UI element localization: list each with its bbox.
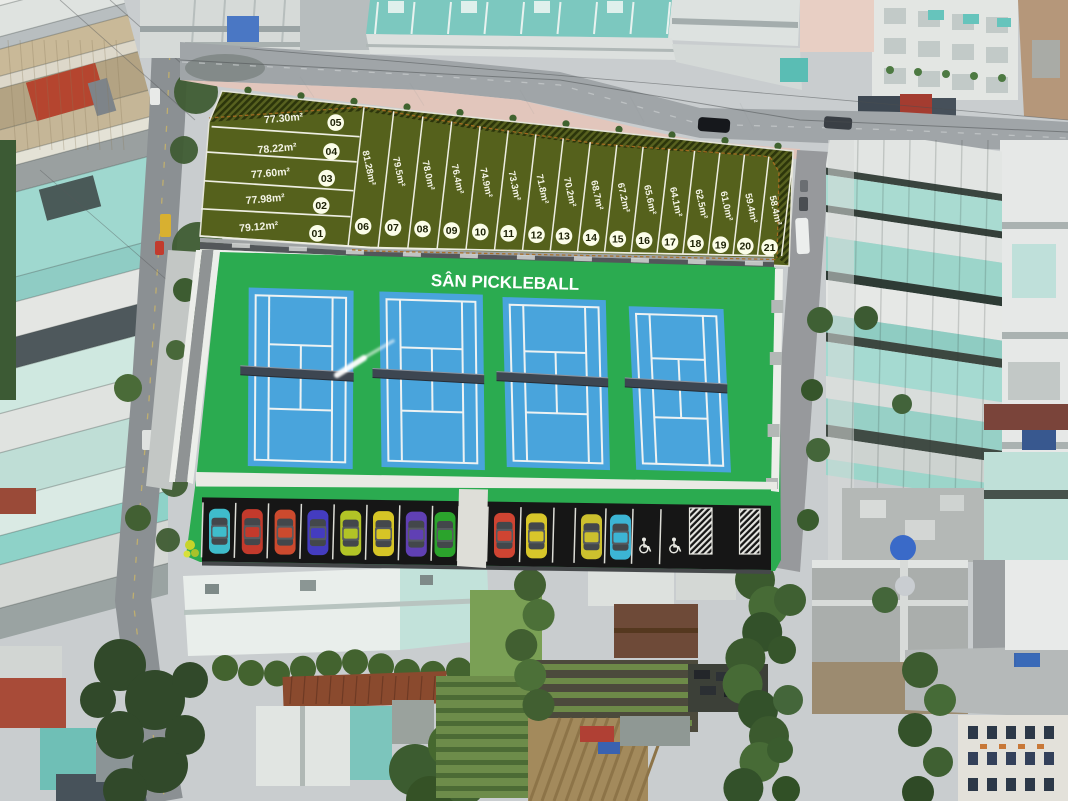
svg-text:01: 01 <box>312 228 324 240</box>
svg-text:07: 07 <box>387 222 399 234</box>
svg-text:11: 11 <box>503 228 514 240</box>
svg-text:08: 08 <box>417 224 429 236</box>
svg-text:05: 05 <box>330 117 342 129</box>
svg-text:04: 04 <box>326 146 338 158</box>
svg-text:14: 14 <box>585 232 597 244</box>
svg-text:SÂN PICKLEBALL: SÂN PICKLEBALL <box>431 271 580 294</box>
svg-text:15: 15 <box>612 234 624 246</box>
svg-text:21: 21 <box>764 242 776 254</box>
svg-text:09: 09 <box>446 225 458 237</box>
svg-text:16: 16 <box>638 235 650 247</box>
svg-text:10: 10 <box>474 227 486 239</box>
svg-text:02: 02 <box>315 200 327 212</box>
svg-text:06: 06 <box>357 221 369 233</box>
svg-text:12: 12 <box>531 229 543 241</box>
svg-text:19: 19 <box>715 239 727 251</box>
svg-text:17: 17 <box>664 236 676 248</box>
svg-text:20: 20 <box>739 241 751 253</box>
svg-text:03: 03 <box>321 173 333 185</box>
svg-text:13: 13 <box>558 231 570 243</box>
svg-text:18: 18 <box>690 238 702 250</box>
